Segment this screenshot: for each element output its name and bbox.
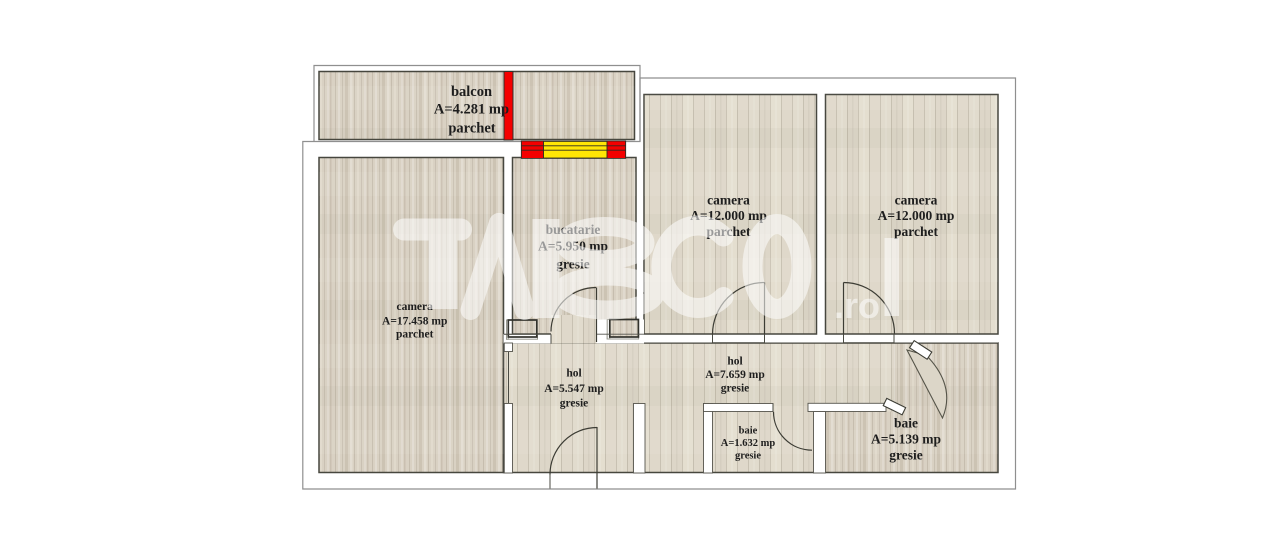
svg-text:camera: camera bbox=[707, 193, 750, 208]
svg-text:A=17.458 mp: A=17.458 mp bbox=[382, 316, 447, 328]
svg-text:A=12.000 mp: A=12.000 mp bbox=[878, 208, 955, 223]
svg-text:camera: camera bbox=[895, 193, 938, 208]
svg-text:A=1.632 mp: A=1.632 mp bbox=[721, 438, 776, 449]
svg-text:camera: camera bbox=[396, 301, 433, 313]
svg-text:gresie: gresie bbox=[735, 451, 761, 462]
svg-text:hol: hol bbox=[566, 368, 581, 380]
svg-text:baie: baie bbox=[739, 426, 758, 437]
svg-text:balcon: balcon bbox=[451, 84, 492, 100]
svg-text:A=5.547 mp: A=5.547 mp bbox=[544, 383, 604, 395]
svg-text:A=5.139 mp: A=5.139 mp bbox=[871, 432, 941, 447]
svg-text:gresie: gresie bbox=[721, 383, 750, 395]
svg-text:parchet: parchet bbox=[894, 224, 938, 239]
svg-text:parchet: parchet bbox=[396, 329, 434, 341]
svg-text:A=4.281 mp: A=4.281 mp bbox=[434, 102, 509, 118]
svg-text:.ro: .ro bbox=[834, 285, 880, 326]
svg-text:parchet: parchet bbox=[448, 121, 495, 137]
svg-text:gresie: gresie bbox=[889, 448, 923, 463]
svg-text:gresie: gresie bbox=[560, 398, 589, 410]
svg-text:A=7.659 mp: A=7.659 mp bbox=[705, 369, 765, 381]
svg-text:baie: baie bbox=[894, 416, 918, 431]
svg-text:hol: hol bbox=[727, 356, 742, 368]
